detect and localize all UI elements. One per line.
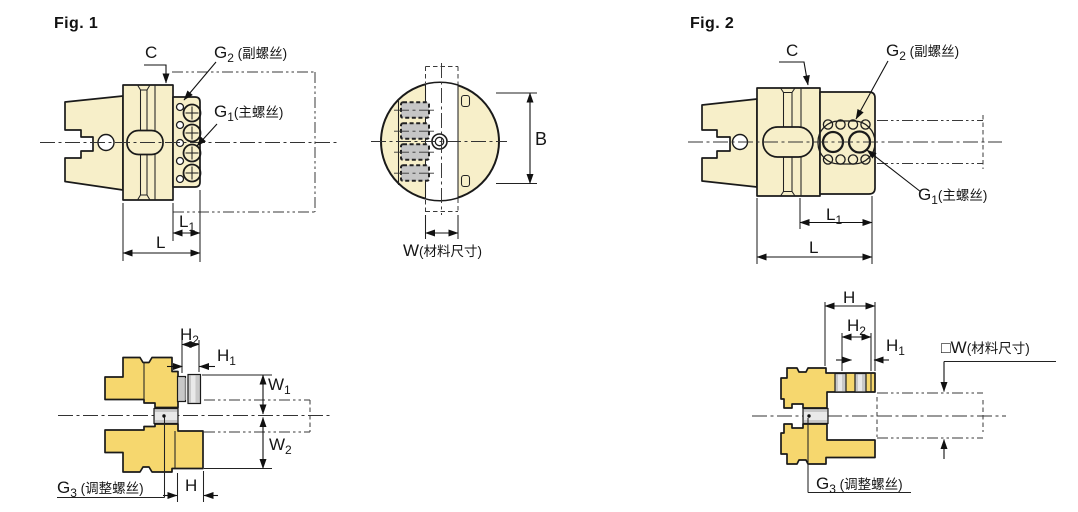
- label-main: H: [886, 336, 898, 355]
- label-sub: 2: [192, 333, 199, 347]
- label-sub: 1: [229, 354, 236, 368]
- fig1-label-c: C: [145, 44, 157, 61]
- label-main: C: [145, 43, 157, 62]
- label-sub: 1: [284, 383, 291, 397]
- fig2-adjust-screw: [803, 409, 828, 424]
- fig2-side-view: [688, 61, 1002, 264]
- fig1-label-h: H: [185, 477, 197, 494]
- fig1-label-h1: H1: [217, 347, 236, 367]
- fig1-section-upper-body: [105, 358, 178, 408]
- fig2-section-material-phantom: [877, 393, 983, 438]
- label-sub: 2: [859, 324, 866, 338]
- fig1-section-material-phantom: [202, 375, 310, 469]
- label-note: (材料尺寸): [967, 341, 1030, 356]
- fig1-g2-leader: [184, 62, 216, 100]
- label-note: (副螺丝): [234, 46, 287, 61]
- fig2-title: Fig. 2: [690, 16, 734, 32]
- fig2-label-h2: H2: [847, 317, 866, 337]
- fig2-label-w: □W(材料尺寸): [941, 339, 1030, 357]
- label-sub: 2: [899, 49, 906, 63]
- fig1-c-callout: [144, 65, 166, 83]
- label-main: G: [918, 185, 931, 204]
- label-main: L: [156, 233, 165, 252]
- fig1-label-g2: G2 (副螺丝): [214, 44, 287, 64]
- label-main: H: [847, 316, 859, 335]
- fig1-label-l: L: [156, 234, 165, 251]
- square-symbol: □: [941, 340, 951, 357]
- fig1-section-lower-body: [105, 424, 203, 472]
- label-main: H: [180, 325, 192, 344]
- label-main: W: [268, 375, 284, 394]
- fig2-label-g1: G1(主螺丝): [918, 186, 987, 206]
- label-sub: 2: [227, 51, 234, 65]
- fig2-section-lower-body: [781, 424, 875, 464]
- label-sub: 1: [898, 344, 905, 358]
- fig1-label-w1: W1: [268, 376, 291, 396]
- label-main: G: [816, 474, 829, 493]
- label-note: (主螺丝): [234, 105, 284, 120]
- fig1-label-l1: L1: [179, 213, 195, 233]
- fig2-label-l: L: [809, 239, 818, 256]
- label-main: G: [214, 102, 227, 121]
- fig1-w-dimension: [426, 215, 459, 239]
- fig1-label-g1: G1(主螺丝): [214, 103, 283, 123]
- label-main: C: [786, 41, 798, 60]
- label-sub: 1: [188, 220, 195, 234]
- label-main: G: [57, 478, 70, 497]
- label-note: (调整螺丝): [836, 477, 903, 492]
- label-sub: 3: [70, 486, 77, 500]
- fig2-label-l1: L1: [826, 206, 842, 226]
- label-main: B: [535, 129, 547, 149]
- fig2-h2-dimension: [842, 333, 871, 371]
- fig2-label-g2: G2 (副螺丝): [886, 42, 959, 62]
- label-sub: 2: [285, 443, 292, 457]
- label-note: (副螺丝): [906, 44, 959, 59]
- label-main: W: [951, 338, 967, 357]
- fig2-label-g3: G3 (调整螺丝): [816, 475, 903, 495]
- label-main: G: [886, 41, 899, 60]
- label-main: L: [809, 238, 818, 257]
- label-main: H: [185, 476, 197, 495]
- label-main: W: [269, 435, 285, 454]
- drawing-canvas: [0, 0, 1078, 512]
- label-note: (调整螺丝): [77, 481, 144, 496]
- fig2-head-body: [820, 92, 875, 194]
- fig1-label-g3: G3 (调整螺丝): [57, 479, 144, 499]
- fig1-title: Fig. 1: [54, 16, 98, 32]
- label-main: G: [214, 43, 227, 62]
- fig2-c-callout: [779, 62, 808, 85]
- label-sub: 1: [227, 110, 234, 124]
- label-main: H: [843, 288, 855, 307]
- fig1-b-dimension: [496, 93, 537, 184]
- fig2-shank-body: [702, 99, 757, 187]
- label-note: (主螺丝): [938, 188, 988, 203]
- fig2-label-h1: H1: [886, 337, 905, 357]
- label-main: H: [217, 346, 229, 365]
- fig2-w-callout: [944, 362, 1056, 460]
- fig1-label-w2: W2: [269, 436, 292, 456]
- label-sub: 1: [835, 213, 842, 227]
- fig1-adjust-screw: [154, 409, 178, 424]
- label-note: (材料尺寸): [419, 244, 482, 259]
- label-main: W: [403, 241, 419, 260]
- technical-drawing-page: Fig. 1 C G2 (副螺丝) G1(主螺丝) L1 L B W(材料尺寸)…: [0, 0, 1078, 512]
- fig1-label-w: W(材料尺寸): [403, 242, 482, 259]
- fig2-section-view: [752, 302, 1056, 493]
- fig2-label-c: C: [786, 42, 798, 59]
- fig1-label-h2: H2: [180, 326, 199, 346]
- label-sub: 1: [931, 193, 938, 207]
- fig1-clamp-screw: [178, 375, 201, 404]
- fig1-label-b: B: [535, 130, 547, 148]
- label-sub: 3: [829, 482, 836, 496]
- fig1-front-view: [371, 63, 537, 239]
- fig2-label-h: H: [843, 289, 855, 306]
